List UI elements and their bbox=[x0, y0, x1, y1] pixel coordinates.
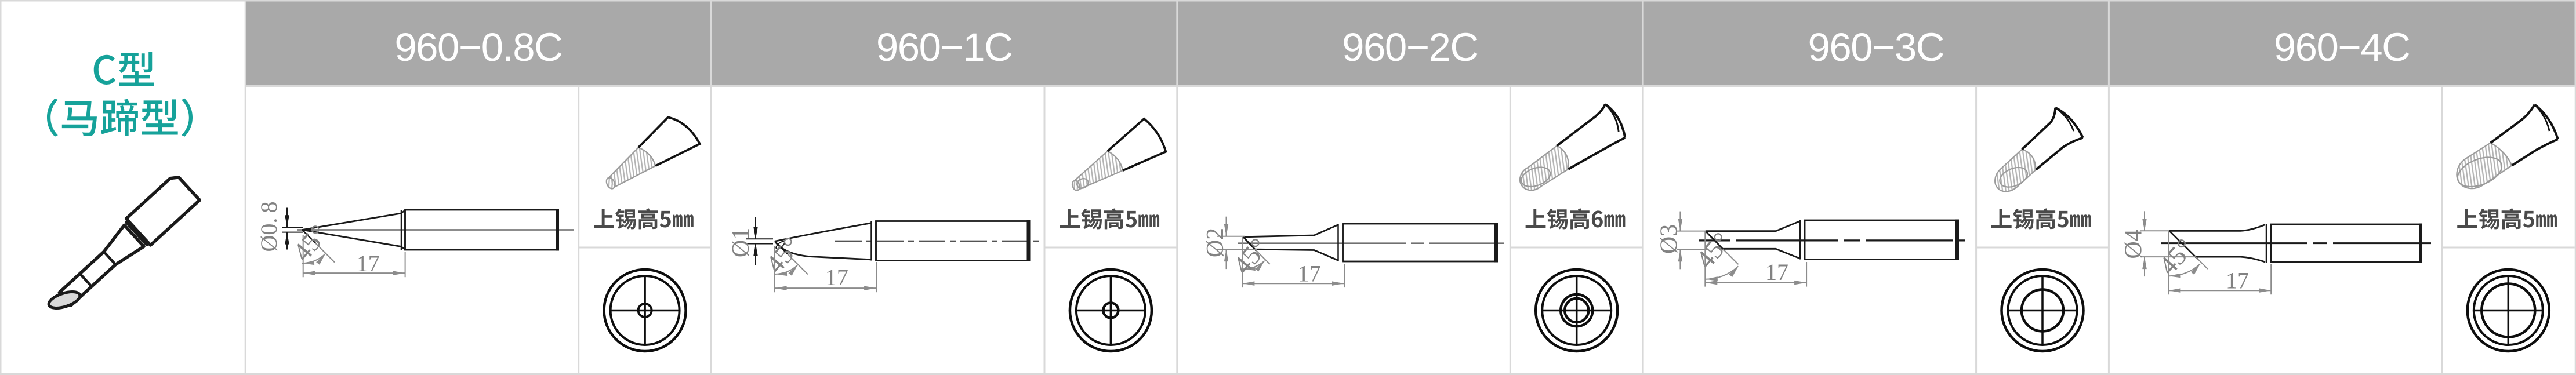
svg-text:960−0.8C: 960−0.8C bbox=[394, 25, 562, 70]
svg-text:17: 17 bbox=[357, 250, 380, 276]
svg-text:960−1C: 960−1C bbox=[876, 25, 1013, 70]
svg-text:960−3C: 960−3C bbox=[1808, 25, 1944, 70]
svg-text:Ø4: Ø4 bbox=[2121, 229, 2147, 259]
svg-text:17: 17 bbox=[1298, 261, 1321, 287]
svg-text:17: 17 bbox=[2226, 268, 2249, 294]
svg-text:Ø0. 8: Ø0. 8 bbox=[256, 202, 282, 252]
svg-text:960−4C: 960−4C bbox=[2274, 25, 2410, 70]
svg-text:17: 17 bbox=[1765, 259, 1788, 285]
svg-text:17: 17 bbox=[825, 264, 848, 290]
svg-text:960−2C: 960−2C bbox=[1342, 25, 1478, 70]
svg-text:Ø1: Ø1 bbox=[728, 228, 754, 257]
svg-text:Ø2: Ø2 bbox=[1202, 228, 1229, 257]
svg-text:Ø3: Ø3 bbox=[1656, 224, 1683, 254]
